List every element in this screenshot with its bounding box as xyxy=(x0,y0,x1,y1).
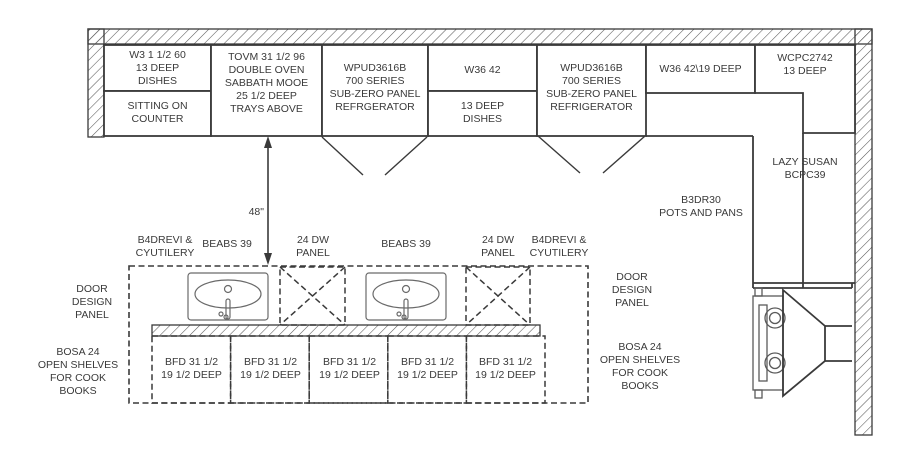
label-bfd-unit: BFD 31 1/2 19 1/2 DEEP xyxy=(231,356,310,382)
range-icon xyxy=(753,288,785,398)
kitchen-floor-plan: W3 1 1/2 60 13 DEEP DISHES SITTING ON CO… xyxy=(0,0,900,463)
label-door-panel-left: DOOR DESIGN PANEL xyxy=(56,283,128,322)
label-cutlery-right: B4DREVI & CYUTILERY xyxy=(528,234,590,260)
label-door-panel-right: DOOR DESIGN PANEL xyxy=(596,271,668,310)
label-dw-right: 24 DW PANEL xyxy=(467,234,529,260)
fridge-left-swing-line xyxy=(322,137,363,175)
fridge-left-swing-line xyxy=(385,137,427,175)
fridge-right-swing-line xyxy=(603,136,645,173)
dishwasher-right-x-icon xyxy=(466,267,530,325)
label-bfd-unit: BFD 31 1/2 19 1/2 DEEP xyxy=(466,356,545,382)
label-dw-left: 24 DW PANEL xyxy=(282,234,344,260)
arrowhead-down-icon xyxy=(264,253,272,265)
label-open-shelves-left: BOSA 24 OPEN SHELVES FOR COOK BOOKS xyxy=(37,346,119,398)
label-sink-left: BEABS 39 xyxy=(196,238,258,251)
dishwasher-left-x-icon xyxy=(280,267,345,325)
label-lazy-susan: LAZY SUSAN BCPC39 xyxy=(753,156,857,182)
label-dimension-48: 48" xyxy=(228,206,264,219)
label-double-oven: TOVM 31 1/2 96 DOUBLE OVEN SABBATH MOOE … xyxy=(211,51,322,116)
label-cutlery-left: B4DREVI & CYUTILERY xyxy=(134,234,196,260)
label-bfd-unit: BFD 31 1/2 19 1/2 DEEP xyxy=(388,356,467,382)
label-13-deep-dishes: 13 DEEP DISHES xyxy=(428,100,537,126)
label-bfd-unit: BFD 31 1/2 19 1/2 DEEP xyxy=(310,356,389,382)
arrowhead-up-icon xyxy=(264,136,272,148)
dimension-arrow xyxy=(264,136,272,265)
sink-right-icon xyxy=(366,273,446,320)
label-pots-and-pans: B3DR30 POTS AND PANS xyxy=(640,194,762,220)
label-sitting-on-counter: SITTING ON COUNTER xyxy=(104,100,211,126)
label-refrigerator-right: WPUD3616B 700 SERIES SUB-ZERO PANEL REFR… xyxy=(537,62,646,114)
fridge-right-swing-line xyxy=(538,136,580,173)
wall-left xyxy=(88,29,104,137)
island-counter-strip xyxy=(152,325,540,336)
label-w36-42: W36 42 xyxy=(428,64,537,77)
label-bfd-unit: BFD 31 1/2 19 1/2 DEEP xyxy=(152,356,231,382)
sink-left-icon xyxy=(188,273,268,320)
label-corner-wcpc: WCPC2742 13 DEEP xyxy=(755,52,855,78)
wall-right xyxy=(855,29,872,435)
label-open-shelves-right: BOSA 24 OPEN SHELVES FOR COOK BOOKS xyxy=(599,341,681,393)
label-cabinet-w3: W3 1 1/2 60 13 DEEP DISHES xyxy=(104,49,211,88)
label-sink-right: BEABS 39 xyxy=(375,238,437,251)
hood-icon xyxy=(783,290,852,396)
label-refrigerator-left: WPUD3616B 700 SERIES SUB-ZERO PANEL REFR… xyxy=(322,62,428,114)
wall-top xyxy=(88,29,872,44)
label-w36-19-deep: W36 42\19 DEEP xyxy=(646,63,755,76)
